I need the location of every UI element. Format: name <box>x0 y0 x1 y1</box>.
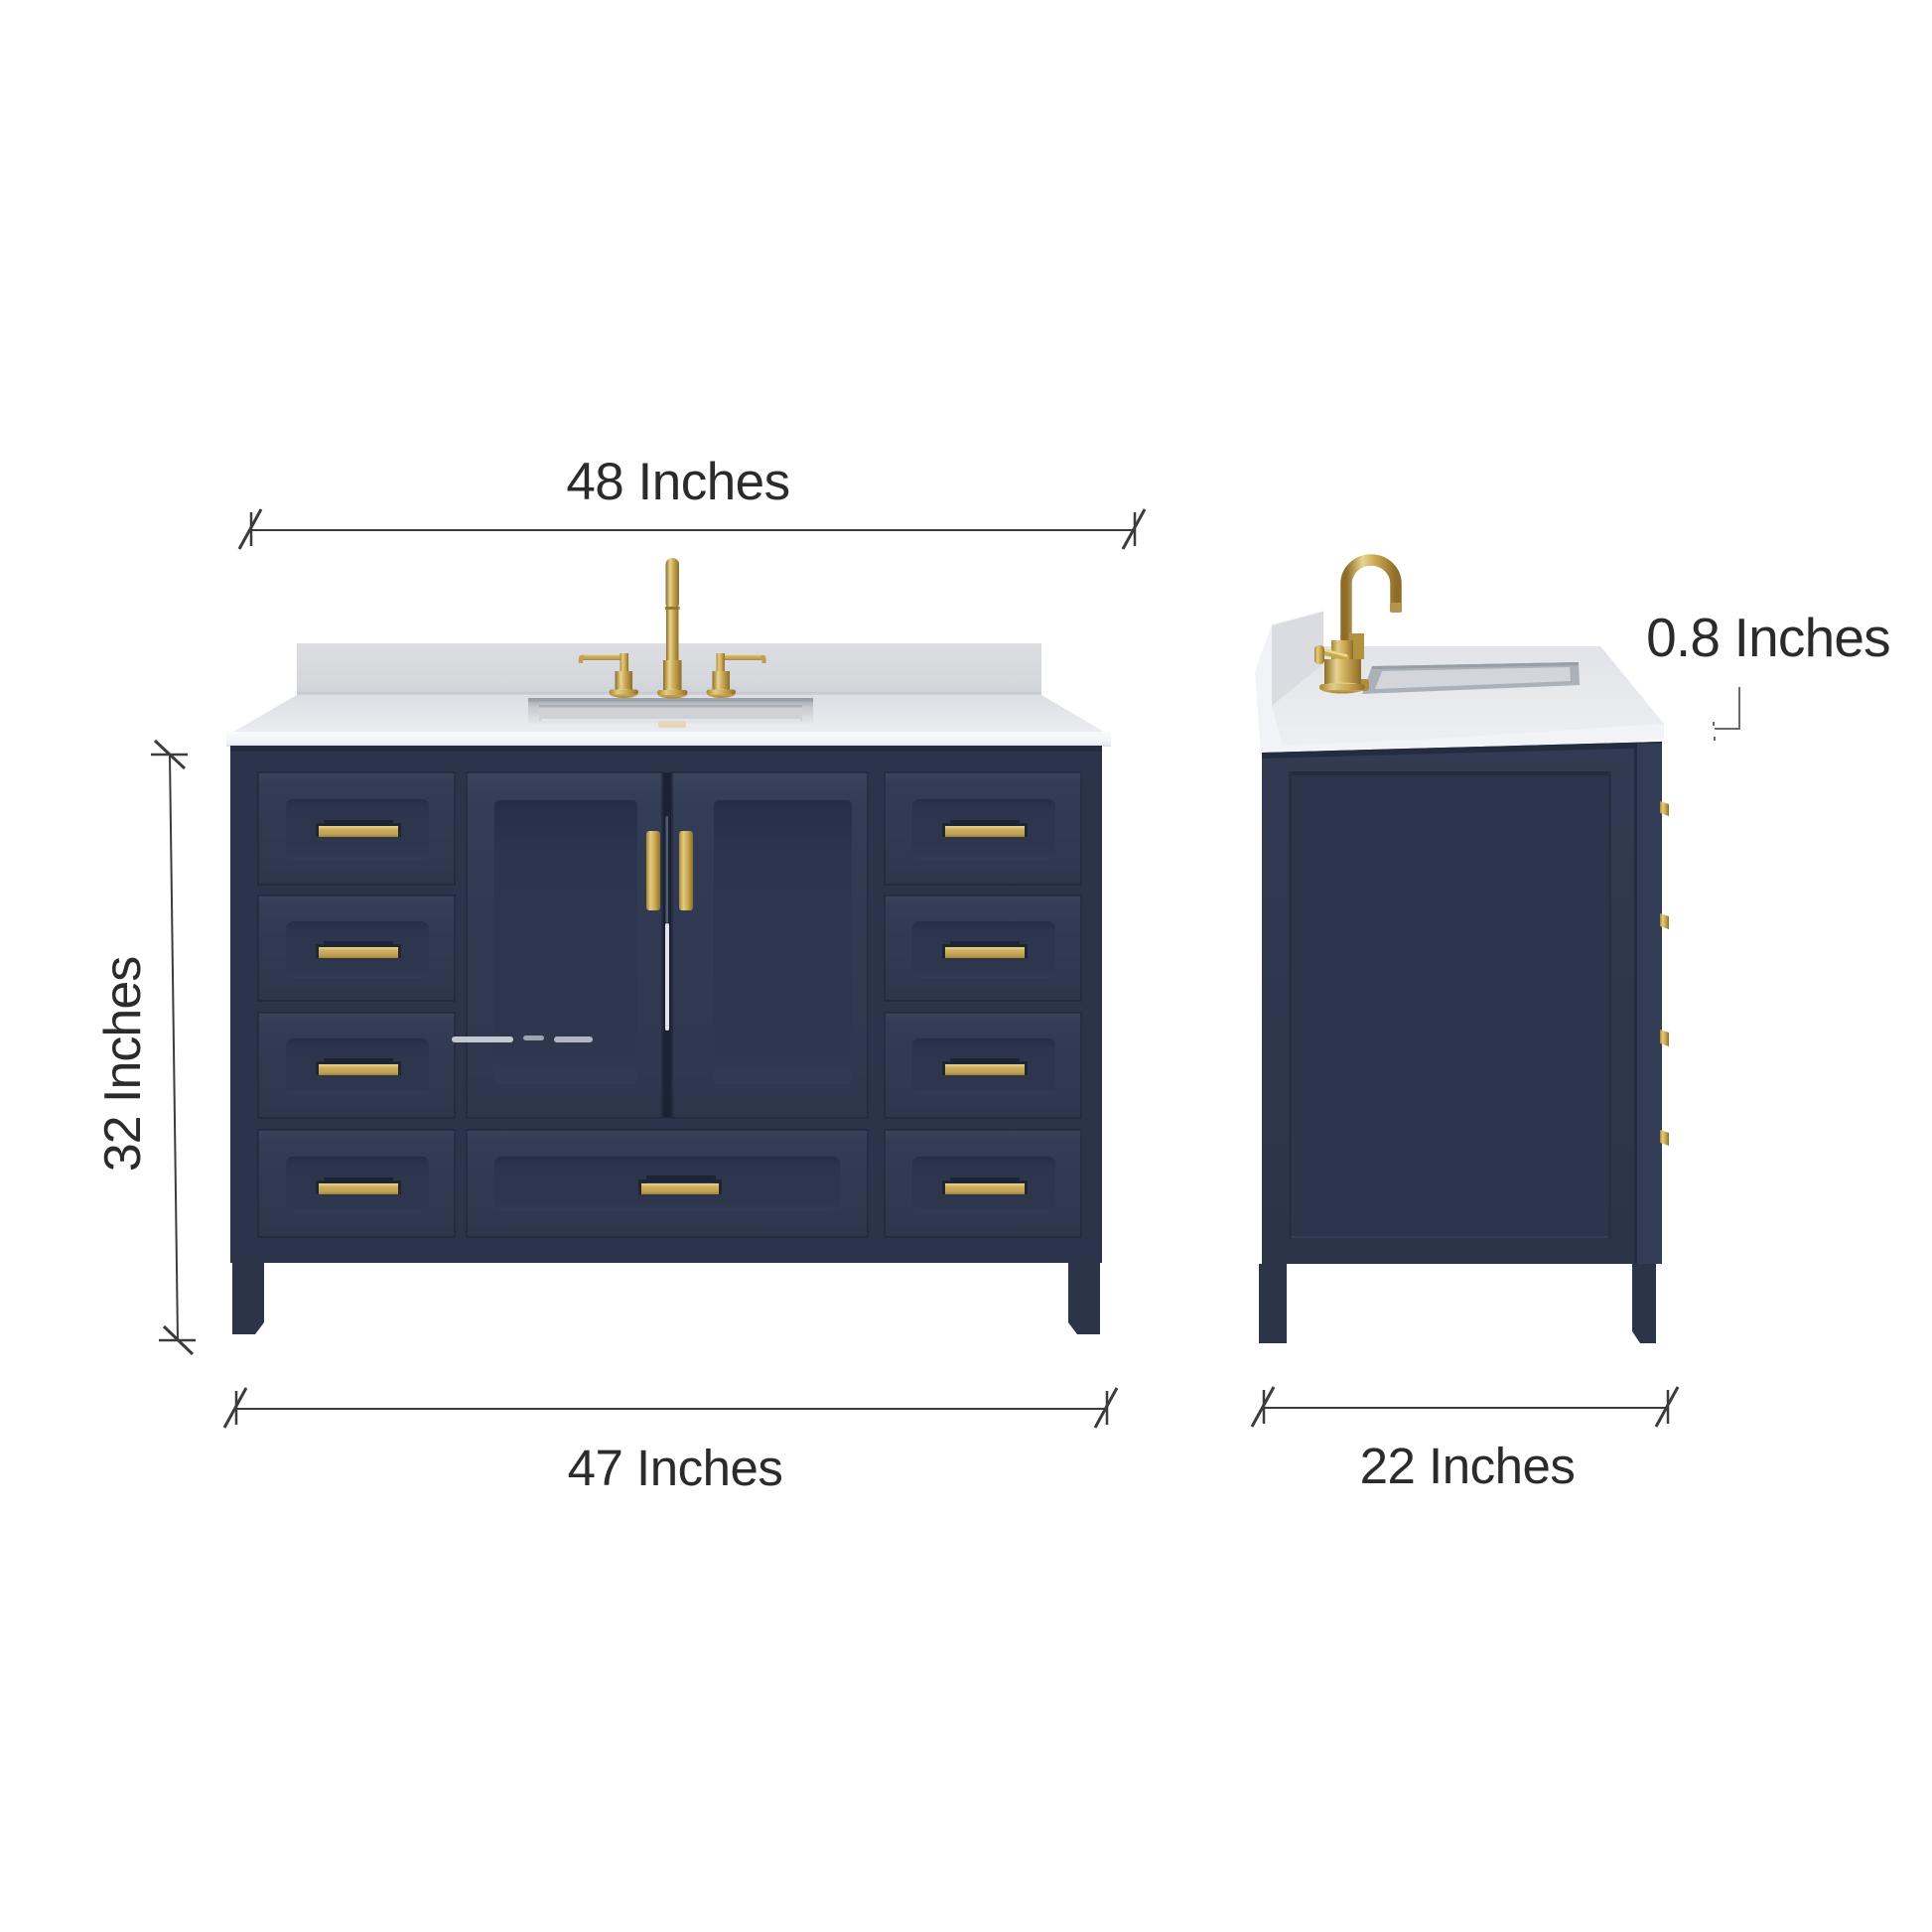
svg-text:48 Inches: 48 Inches <box>566 453 789 511</box>
svg-text:22 Inches: 22 Inches <box>1360 1438 1576 1494</box>
svg-text:32 Inches: 32 Inches <box>94 957 152 1173</box>
svg-text:0.8 Inches: 0.8 Inches <box>1646 607 1890 668</box>
svg-text:47 Inches: 47 Inches <box>568 1440 783 1496</box>
